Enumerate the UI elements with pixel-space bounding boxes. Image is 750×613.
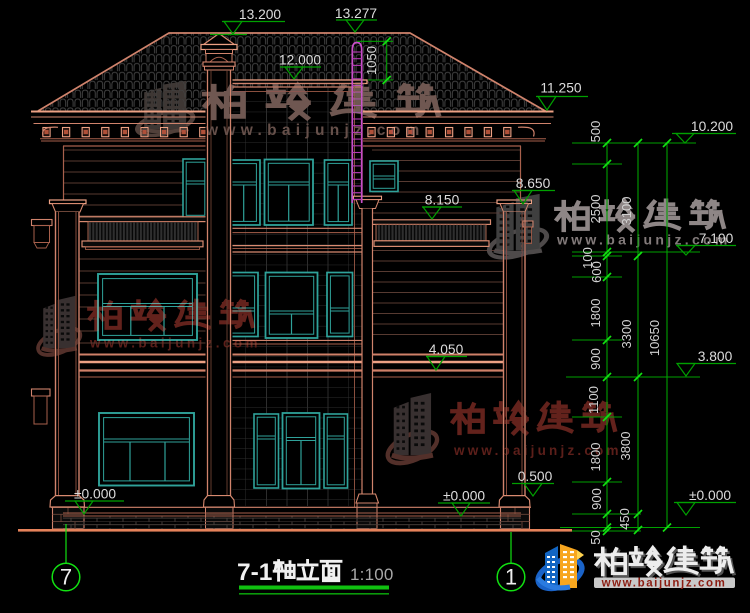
svg-text:3100: 3100 — [619, 197, 634, 226]
svg-text:±0.000: ±0.000 — [443, 489, 485, 504]
svg-text:11.250: 11.250 — [540, 81, 582, 96]
svg-text:1: 1 — [505, 565, 517, 590]
svg-text:0.500: 0.500 — [518, 469, 553, 484]
svg-text:7.100: 7.100 — [699, 231, 734, 246]
svg-text:3.800: 3.800 — [698, 349, 733, 364]
svg-text:2500: 2500 — [588, 195, 603, 224]
svg-text:900: 900 — [588, 348, 603, 370]
svg-text:1800: 1800 — [588, 443, 603, 472]
svg-text:1800: 1800 — [588, 299, 603, 328]
svg-text:1100: 1100 — [586, 386, 601, 414]
svg-text:900: 900 — [589, 488, 604, 510]
svg-text:13.277: 13.277 — [335, 6, 377, 21]
svg-text:50: 50 — [588, 530, 603, 544]
svg-text:500: 500 — [588, 121, 603, 143]
svg-text:www.baijunjz.com: www.baijunjz.com — [89, 336, 261, 351]
svg-text:www.baijunjz.com: www.baijunjz.com — [205, 122, 425, 139]
svg-text:±0.000: ±0.000 — [689, 488, 731, 503]
svg-text:7: 7 — [60, 565, 72, 590]
svg-text:8.650: 8.650 — [516, 176, 551, 191]
svg-text:1050: 1050 — [364, 46, 379, 75]
svg-text:10.200: 10.200 — [691, 119, 734, 134]
svg-text:3800: 3800 — [618, 432, 633, 461]
svg-text:4.050: 4.050 — [429, 342, 464, 357]
svg-text:13.200: 13.200 — [239, 7, 282, 22]
svg-text:450: 450 — [617, 508, 632, 530]
svg-text:±0.000: ±0.000 — [74, 487, 116, 502]
svg-text:12.000: 12.000 — [279, 53, 322, 68]
svg-text:3300: 3300 — [619, 320, 634, 349]
svg-text:10650: 10650 — [647, 320, 662, 356]
svg-text:7-1: 7-1 — [237, 559, 272, 586]
svg-text:www.baijunjz.com: www.baijunjz.com — [601, 577, 727, 589]
svg-text:1:100: 1:100 — [350, 565, 394, 584]
svg-text:600: 600 — [589, 261, 604, 283]
svg-text:8.150: 8.150 — [425, 193, 460, 208]
